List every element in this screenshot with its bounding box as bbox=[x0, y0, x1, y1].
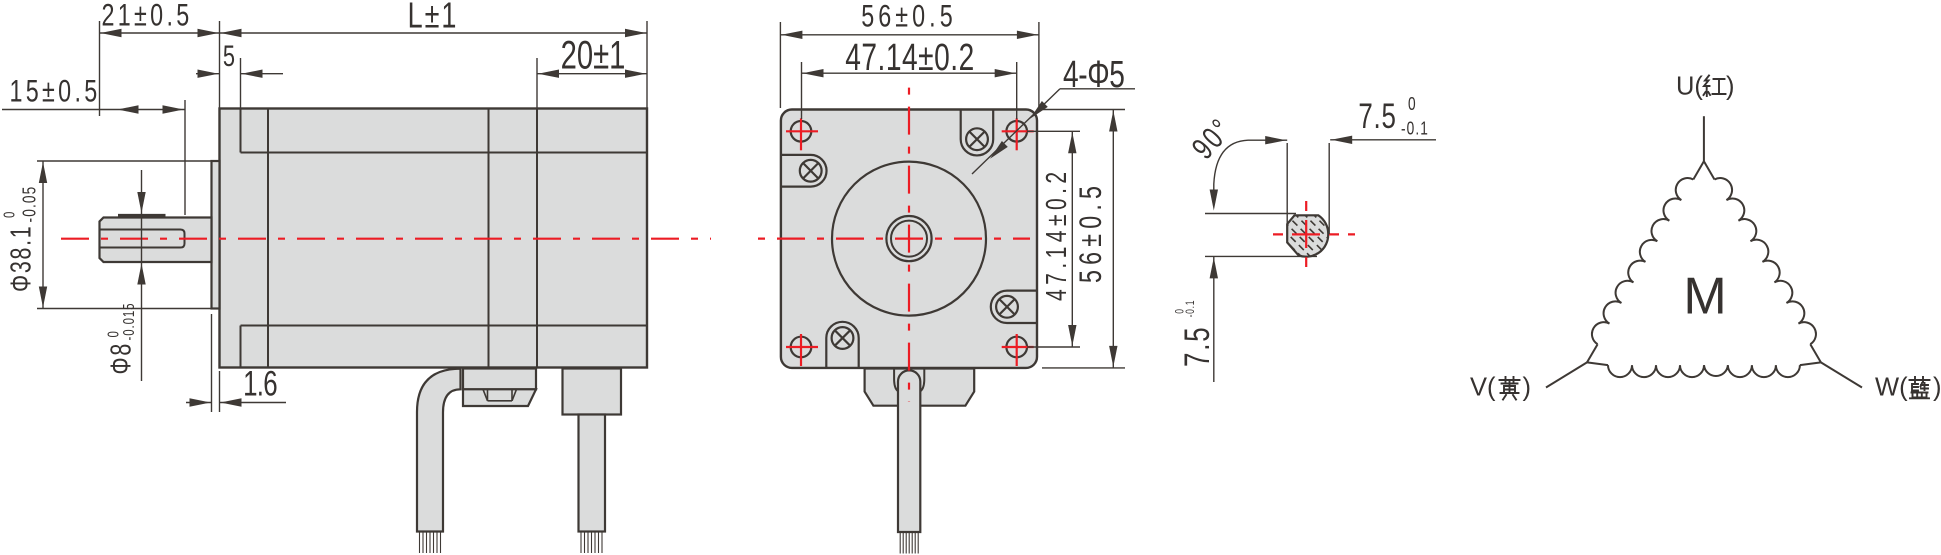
svg-text:U(: U( bbox=[1676, 73, 1703, 101]
svg-text:47.14±0.2: 47.14±0.2 bbox=[1041, 167, 1073, 301]
svg-text:20±1: 20±1 bbox=[561, 34, 626, 77]
svg-text:): ) bbox=[1523, 374, 1532, 402]
svg-text:56±0.5: 56±0.5 bbox=[861, 0, 956, 33]
svg-text:-0.1: -0.1 bbox=[1185, 300, 1198, 318]
svg-text:5: 5 bbox=[223, 41, 235, 73]
svg-text:V(: V( bbox=[1470, 374, 1496, 402]
svg-text:): ) bbox=[1933, 374, 1941, 402]
svg-text:): ) bbox=[1726, 73, 1735, 101]
svg-text:4-Φ5: 4-Φ5 bbox=[1063, 54, 1125, 96]
svg-text:Φ38.1: Φ38.1 bbox=[5, 225, 37, 292]
svg-text:L±1: L±1 bbox=[408, 0, 459, 35]
svg-text:56±0.5: 56±0.5 bbox=[1073, 181, 1108, 283]
svg-text:21±0.5: 21±0.5 bbox=[101, 0, 192, 32]
svg-text:0: 0 bbox=[105, 330, 122, 337]
svg-text:W(: W( bbox=[1875, 374, 1908, 402]
svg-text:Φ8: Φ8 bbox=[105, 342, 137, 374]
svg-text:47.14±0.2: 47.14±0.2 bbox=[845, 37, 974, 79]
svg-text:7.5: 7.5 bbox=[1177, 325, 1217, 367]
svg-text:7.5: 7.5 bbox=[1358, 96, 1396, 136]
svg-text:15±0.5: 15±0.5 bbox=[9, 73, 100, 108]
svg-text:0: 0 bbox=[1408, 94, 1417, 114]
svg-text:1.6: 1.6 bbox=[243, 364, 277, 404]
svg-text:0: 0 bbox=[1, 211, 18, 218]
svg-text:-0.05: -0.05 bbox=[20, 186, 40, 223]
svg-text:-0.1: -0.1 bbox=[1401, 119, 1429, 139]
svg-text:-0.015: -0.015 bbox=[120, 303, 137, 341]
svg-text:M: M bbox=[1683, 268, 1726, 326]
